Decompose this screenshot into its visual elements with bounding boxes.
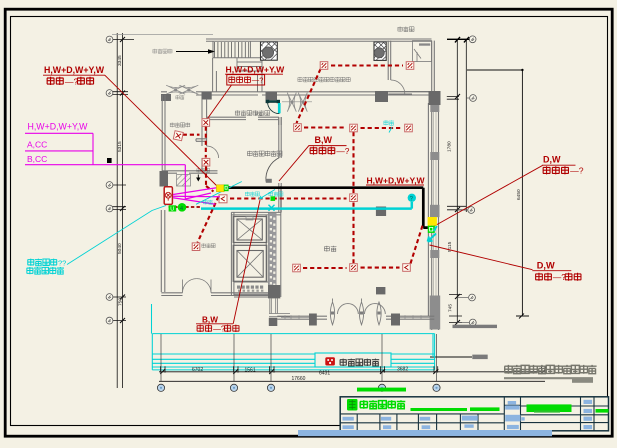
svg-text:6702: 6702 [192, 367, 203, 373]
svg-text:951: 951 [255, 112, 263, 117]
svg-text:1780: 1780 [447, 141, 453, 152]
svg-text:1561: 1561 [245, 368, 256, 374]
svg-text:—?: —? [252, 76, 264, 85]
svg-text:H,W+D,W+Y,W: H,W+D,W+Y,W [367, 176, 426, 186]
svg-text:3682: 3682 [397, 367, 408, 373]
svg-text:6450: 6450 [516, 189, 522, 200]
svg-text:B,CC: B,CC [27, 154, 47, 164]
svg-text:??: ?? [58, 258, 66, 267]
svg-text:B,W: B,W [202, 316, 218, 325]
svg-text:B,W: B,W [315, 135, 333, 145]
svg-text:—?: —? [213, 324, 226, 333]
svg-text:D,W: D,W [543, 155, 561, 165]
svg-text:750: 750 [118, 298, 124, 306]
svg-text:4: 4 [180, 206, 183, 212]
svg-text:5315: 5315 [117, 141, 123, 152]
svg-text:U: U [170, 207, 174, 213]
svg-text:A,CC: A,CC [27, 140, 47, 150]
svg-text:5040: 5040 [117, 243, 123, 254]
svg-text:—?: —? [336, 146, 349, 156]
svg-text:745: 745 [448, 304, 454, 312]
svg-text:H,W+D,W+Y,W: H,W+D,W+Y,W [28, 122, 89, 132]
svg-text:H,W+D,W+Y,W: H,W+D,W+Y,W [44, 65, 105, 75]
svg-text:3345: 3345 [117, 55, 123, 66]
svg-text:6431: 6431 [319, 371, 330, 377]
svg-text:17660: 17660 [292, 376, 306, 382]
svg-text:—?: —? [553, 272, 566, 282]
svg-text:D,W: D,W [537, 260, 555, 270]
svg-text:—?: —? [570, 166, 584, 176]
svg-text:H,W+D,W+Y,W: H,W+D,W+Y,W [226, 65, 286, 75]
svg-text:—?: —? [65, 76, 79, 86]
